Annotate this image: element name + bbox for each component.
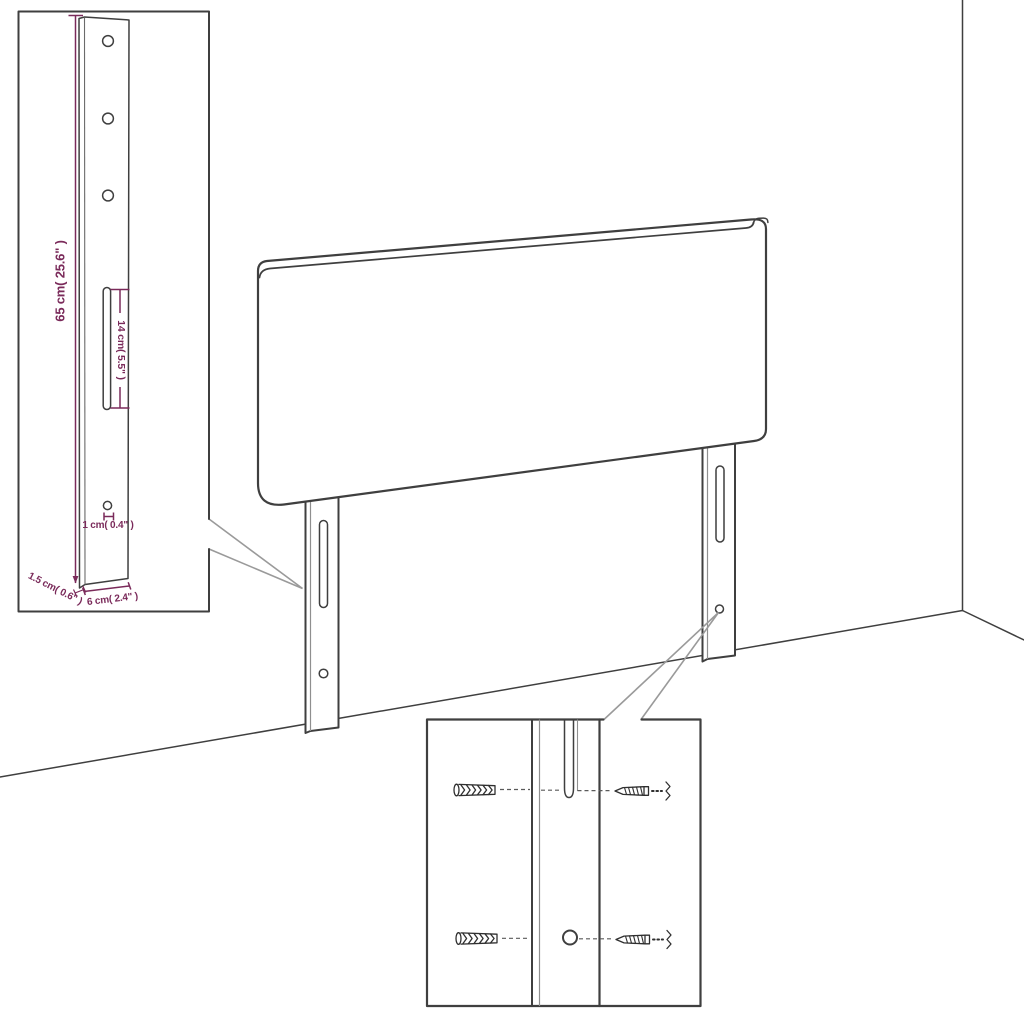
- dimension-label-total-height: 65 cm( 25.6" ): [53, 240, 68, 321]
- bracket-drawing: [79, 17, 129, 588]
- right-leg-hole: [716, 605, 724, 613]
- floor-line-right: [963, 611, 1024, 641]
- bracket-edge-line: [85, 18, 86, 585]
- callout-line-bracket-top: [209, 519, 303, 589]
- left-leg-slot: [320, 521, 328, 608]
- diagram-canvas: 65 cm( 25.6" ) 14 cm( 5.5" ) 1 cm( 0.4" …: [0, 0, 1024, 1024]
- mounting-hardware-inset: [427, 720, 701, 1007]
- callout-lines: [209, 519, 719, 720]
- callout-line-bracket-bottom: [209, 549, 303, 589]
- callout-line-hardware-right: [641, 613, 719, 720]
- dimension-label-hole-size: 1 cm( 0.4" ): [82, 520, 133, 531]
- callout-line-hardware-left: [604, 613, 719, 720]
- bracket-detail-inset: 65 cm( 25.6" ) 14 cm( 5.5" ) 1 cm( 0.4" …: [19, 12, 210, 612]
- headboard-panel: [258, 219, 766, 505]
- headboard-dimensions-diagram: 65 cm( 25.6" ) 14 cm( 5.5" ) 1 cm( 0.4" …: [0, 0, 1024, 1024]
- headboard: [258, 218, 768, 505]
- left-leg-hole: [319, 669, 328, 678]
- dimension-label-slot-length: 14 cm( 5.5" ): [115, 320, 127, 380]
- right-leg-slot: [716, 466, 724, 542]
